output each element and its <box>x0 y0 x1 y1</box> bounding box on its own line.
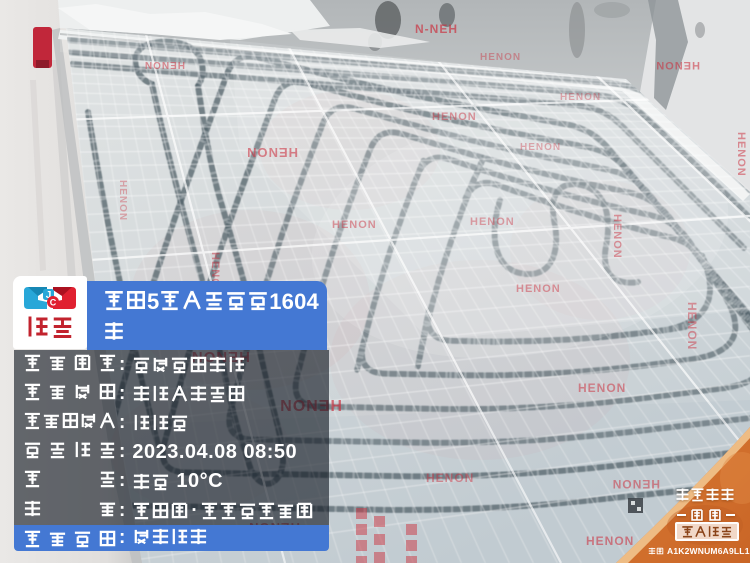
svg-text:N-NEH: N-NEH <box>415 22 458 36</box>
svg-text:C: C <box>50 298 57 308</box>
svg-text:HENON: HENON <box>586 534 634 548</box>
svg-text:HENON: HENON <box>685 302 699 350</box>
svg-text:HENON: HENON <box>117 180 128 221</box>
svg-text:HENON: HENON <box>655 59 700 71</box>
svg-text:HENON: HENON <box>470 216 515 228</box>
svg-text:HENON: HENON <box>516 283 561 295</box>
svg-text:HENON: HENON <box>560 92 601 103</box>
svg-text:HENON: HENON <box>520 142 561 153</box>
svg-text:HENON: HENON <box>144 59 185 70</box>
svg-text:HENON: HENON <box>578 381 626 395</box>
svg-text:HENON: HENON <box>480 52 521 63</box>
svg-text:HENON: HENON <box>611 214 623 259</box>
svg-text:HENON: HENON <box>432 111 477 123</box>
svg-text:HENON: HENON <box>612 477 660 491</box>
svg-text:HENON: HENON <box>426 471 474 485</box>
svg-text:HENON: HENON <box>246 145 298 160</box>
svg-text:HENON: HENON <box>332 219 377 231</box>
svg-text:HENON: HENON <box>735 132 747 177</box>
